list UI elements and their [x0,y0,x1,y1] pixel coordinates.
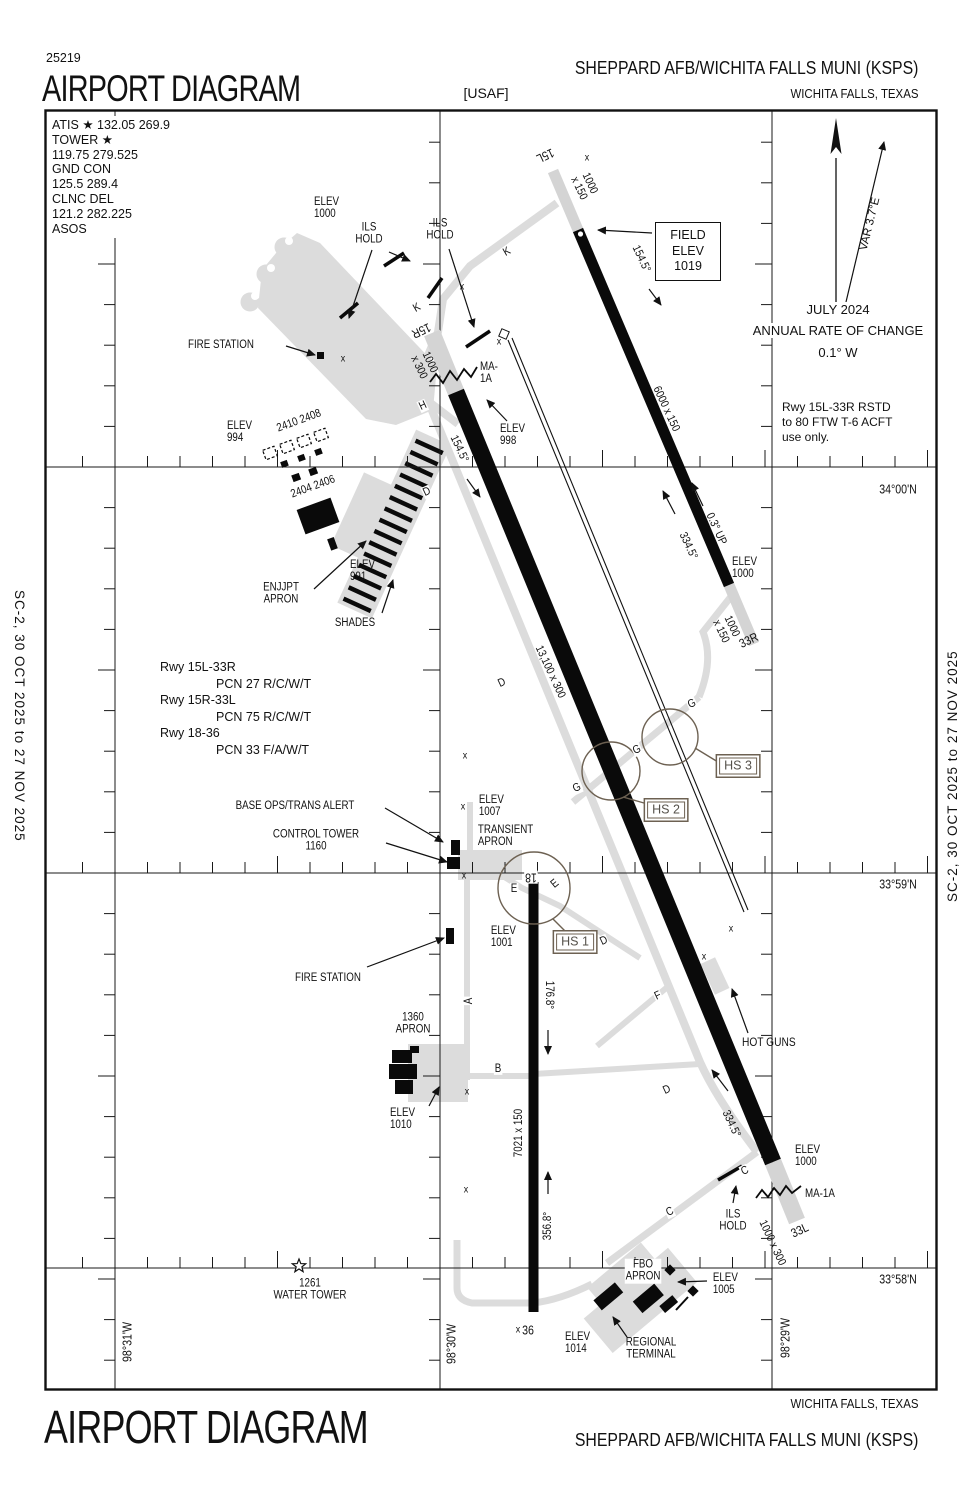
pcn-value-15l-33r: PCN 27 R/C/W/T [160,676,311,693]
obstruction-x: x [341,353,345,364]
pcn-rwy-18-36: Rwy 18-36 [160,725,311,742]
edge-date-left: SC-2, 30 OCT 2025 to 27 NOV 2025 [12,590,27,902]
magvar-rate-value: 0.1° W [818,345,857,360]
taxiway-network [424,203,757,1303]
obstruction-x: x [464,1184,468,1195]
elev-1000-nw-label: ELEV 1000 [314,196,339,221]
ma1a-south-label: MA-1A [805,1188,835,1200]
elev-1001-label: ELEV 1001 [490,925,517,950]
obstruction-x: x [461,801,465,812]
elev-991-label: ELEV 991 [350,559,375,584]
chart-code: 25219 [46,51,81,65]
regional-terminal-label: REGIONAL TERMINAL [626,1337,677,1362]
dashed-buildings [263,428,329,460]
elev-1005-label: ELEV 1005 [712,1272,739,1297]
taxiway-e-label-1: E [510,883,518,895]
edge-date-right: SC-2, 30 OCT 2025 to 27 NOV 2025 [945,590,960,902]
magvar-rate-label: ANNUAL RATE OF CHANGE [753,323,923,338]
obstruction-x: x [702,951,706,962]
elev-1000-33l-label: ELEV 1000 [795,1144,820,1169]
taxiway-b-east [534,1064,700,1074]
taxiway-d [426,396,757,1152]
north-arrow [831,118,842,306]
control-tower-label: CONTROL TOWER 1160 [273,829,359,854]
lon-98-31: 98°31'W [121,1322,134,1362]
obstruction-x: x [585,152,589,163]
runway-15l-33r [578,230,729,585]
rwy-18-36-dim: 7021 x 150 [513,1109,525,1157]
lat-33-58: 33°58'N [879,1273,917,1286]
clnc-del-frequency: 121.2 282.225 [52,207,170,222]
obstruction-x: x [462,870,466,881]
field-elev-box: FIELD ELEV 1019 [655,222,721,281]
elev-994-label: ELEV 994 [227,420,252,445]
tower-frequency: 119.75 279.525 [52,148,170,163]
asos-label: ASOS [52,222,170,237]
footer-title: AIRPORT DIAGRAM [44,1400,459,1454]
obstruction-x: x [516,1324,520,1335]
gnd-con-label: GND CON [52,162,170,177]
airport-city: WICHITA FALLS, TEXAS [773,86,918,101]
taxiway-a-label: A [463,997,475,1005]
hot-guns-label: HOT GUNS [742,1036,796,1049]
airport-name: SHEPPARD AFB/WICHITA FALLS MUNI (KSPS) [528,58,918,79]
ils-hold-nw-label: ILS HOLD [355,222,382,247]
operator-label: [USAF] [440,85,532,101]
apron-1360-label: 1360 APRON [396,1012,431,1037]
obstruction-x: x [465,1086,469,1097]
transient-apron-label: TRANSIENT APRON [477,824,534,849]
fire-station-north-building [317,352,324,359]
taxiway-g-north [699,594,733,697]
footer-airport-name: SHEPPARD AFB/WICHITA FALLS MUNI (KSPS) [528,1430,918,1451]
obstruction-x: x [463,750,467,761]
runway-15r-33l [456,392,773,1162]
tower-label: TOWER ★ [52,133,170,148]
pcn-data-block: Rwy 15L-33R PCN 27 R/C/W/T Rwy 15R-33L P… [160,659,311,759]
pcn-value-15r-33l: PCN 75 R/C/W/T [160,709,311,726]
base-ops-building [451,840,460,855]
water-tower-star-icon [292,1259,305,1272]
rwy-36-heading: 356.8° [542,1212,554,1240]
clnc-del-label: CLNC DEL [52,192,170,207]
ma1a-north-label: MA- 1A [480,361,498,386]
footer-city: WICHITA FALLS, TEXAS [773,1396,918,1411]
threshold-dot-15l [578,231,583,236]
fbo-apron-label: FBO APRON [625,1259,661,1284]
page-title: AIRPORT DIAGRAM [42,68,373,110]
transient-apron-area [458,850,522,880]
taxiway-south-wrap [457,1240,592,1303]
hotspot-box-hs3: HS 3 [719,758,757,775]
ils-hold-s-label: ILS HOLD [719,1209,748,1234]
lat-34-00: 34°00'N [879,483,917,496]
elev-1010-label: ELEV 1010 [390,1107,415,1132]
gnd-con-frequency: 125.5 289.4 [52,177,170,192]
pcn-rwy-15r-33l: Rwy 15R-33L [160,692,311,709]
hotspot-box-hs1: HS 1 [556,934,594,951]
taxiway-b-label: B [494,1063,502,1075]
elev-1007-label: ELEV 1007 [478,794,505,819]
rwy-18-heading: 176.8° [543,981,555,1009]
fire-station-south-label: FIRE STATION [295,972,361,984]
ils-hold-n-label: ILS HOLD [426,218,453,243]
pcn-value-18-36: PCN 33 F/A/W/T [160,742,311,759]
hotspot-box-hs2: HS 2 [647,802,685,819]
magvar-date: JULY 2024 [806,302,869,317]
restriction-note: Rwy 15L-33R RSTD to 80 FTW T-6 ACFT use … [782,400,892,446]
water-tower-label: 1261 WATER TOWER [274,1278,347,1303]
obstruction-x: x [460,281,464,292]
lat-33-59: 33°59'N [879,878,917,891]
enjjpt-apron-label: ENJJPT APRON [263,582,299,607]
enjjpt-building [297,498,340,535]
pcn-rwy-15l-33r: Rwy 15L-33R [160,659,311,676]
fire-station-north-label: FIRE STATION [188,339,254,351]
rwy-18-number: 18 [524,870,538,883]
lon-98-30: 98°30'W [445,1324,458,1364]
elev-1000-33r-label: ELEV 1000 [732,556,757,581]
lon-98-29: 98°29'W [779,1318,792,1358]
elev-1014-label: ELEV 1014 [565,1331,590,1356]
obstruction-x: x [497,336,501,347]
field-elev-arrow [598,230,652,233]
control-tower-building [447,857,460,869]
elev-998-label: ELEV 998 [500,423,525,448]
obstruction-x: x [729,923,733,934]
airport-diagram-page: 25219 AIRPORT DIAGRAM [USAF] SHEPPARD AF… [0,0,979,1500]
comm-frequencies: ATIS ★ 132.05 269.9 TOWER ★ 119.75 279.5… [52,116,174,238]
atis-frequency: ATIS ★ 132.05 269.9 [52,118,170,133]
shades-label: SHADES [335,617,375,629]
base-ops-label: BASE OPS/TRANS ALERT [236,800,355,812]
rwy-36-number: 36 [521,1324,535,1337]
fire-station-south-building [446,928,454,944]
